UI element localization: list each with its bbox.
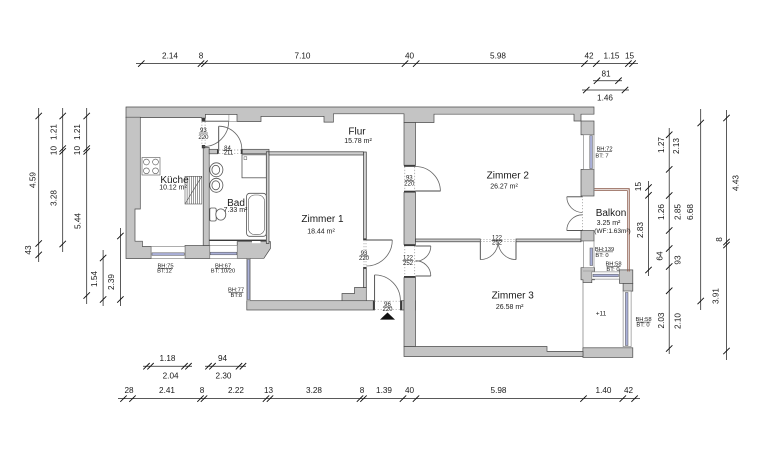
svg-text:BT: 7: BT: 7 <box>595 154 608 160</box>
svg-text:220: 220 <box>359 256 370 262</box>
svg-text:6.68: 6.68 <box>686 204 695 220</box>
svg-text:+11: +11 <box>596 311 607 318</box>
svg-text:42: 42 <box>624 386 634 395</box>
svg-text:18.44 m²: 18.44 m² <box>307 228 335 235</box>
svg-text:211: 211 <box>224 151 234 157</box>
svg-text:220: 220 <box>198 135 209 141</box>
svg-text:7.33 m²: 7.33 m² <box>224 207 248 214</box>
svg-text:Zimmer 3: Zimmer 3 <box>492 291 535 302</box>
svg-text:8: 8 <box>199 52 204 61</box>
svg-text:2.03: 2.03 <box>657 312 666 328</box>
svg-text:2.22: 2.22 <box>228 386 244 395</box>
svg-text:10.12 m²: 10.12 m² <box>159 185 187 192</box>
svg-text:1.27: 1.27 <box>657 137 666 153</box>
svg-text:13: 13 <box>264 386 274 395</box>
svg-text:BT:12: BT:12 <box>157 269 172 275</box>
svg-text:4.59: 4.59 <box>29 172 38 188</box>
svg-text:2.14: 2.14 <box>162 52 178 61</box>
svg-text:3.28: 3.28 <box>306 386 322 395</box>
svg-text:BT:8: BT:8 <box>230 293 242 299</box>
svg-text:220: 220 <box>404 181 415 187</box>
svg-text:2.04: 2.04 <box>163 371 179 380</box>
svg-text:252: 252 <box>403 261 414 267</box>
svg-text:1.21: 1.21 <box>73 124 82 140</box>
svg-text:BT: 0: BT: 0 <box>606 267 619 273</box>
svg-text:1.15: 1.15 <box>604 52 620 61</box>
svg-text:Flur: Flur <box>348 127 366 138</box>
svg-text:26.58 m²: 26.58 m² <box>496 304 524 311</box>
svg-text:1.54: 1.54 <box>90 271 99 287</box>
svg-text:94: 94 <box>218 354 228 363</box>
svg-text:8: 8 <box>715 237 724 242</box>
svg-text:81: 81 <box>601 70 611 79</box>
svg-text:1.18: 1.18 <box>160 354 176 363</box>
svg-text:5.98: 5.98 <box>490 52 506 61</box>
svg-text:1.40: 1.40 <box>596 386 612 395</box>
svg-text:252: 252 <box>492 241 503 247</box>
svg-text:3.28: 3.28 <box>50 190 59 206</box>
svg-text:BT: 0: BT: 0 <box>595 253 608 259</box>
svg-text:(WF:1.63m²): (WF:1.63m²) <box>594 228 630 235</box>
svg-text:42: 42 <box>584 52 594 61</box>
svg-text:3.91: 3.91 <box>712 288 721 304</box>
svg-text:8: 8 <box>200 386 205 395</box>
svg-text:220: 220 <box>382 307 393 313</box>
svg-text:2.83: 2.83 <box>636 222 645 238</box>
svg-text:4.43: 4.43 <box>732 175 741 191</box>
svg-text:2.30: 2.30 <box>216 371 232 380</box>
svg-text:93: 93 <box>674 255 683 265</box>
svg-text:2.10: 2.10 <box>674 313 683 329</box>
svg-text:15.78 m²: 15.78 m² <box>344 138 372 145</box>
svg-text:1.21: 1.21 <box>50 124 59 140</box>
svg-text:BT: 0: BT: 0 <box>636 323 649 329</box>
svg-text:Zimmer 1: Zimmer 1 <box>301 214 344 225</box>
svg-text:10: 10 <box>50 146 59 156</box>
svg-text:3.25 m²: 3.25 m² <box>597 220 621 227</box>
svg-text:2.41: 2.41 <box>159 386 175 395</box>
svg-text:5.98: 5.98 <box>491 386 507 395</box>
svg-text:43: 43 <box>24 245 33 255</box>
svg-text:2.13: 2.13 <box>672 138 681 154</box>
svg-text:Zimmer 2: Zimmer 2 <box>487 171 530 182</box>
svg-text:10: 10 <box>73 146 82 156</box>
svg-text:1.46: 1.46 <box>597 94 613 103</box>
svg-text:7.10: 7.10 <box>295 52 311 61</box>
svg-text:5.44: 5.44 <box>74 213 83 229</box>
svg-text:8: 8 <box>360 386 365 395</box>
svg-text:15: 15 <box>634 182 643 192</box>
svg-text:64: 64 <box>656 251 665 261</box>
svg-text:BT: 10/20: BT: 10/20 <box>211 269 236 275</box>
svg-text:1.26: 1.26 <box>657 204 666 220</box>
svg-text:28: 28 <box>124 386 134 395</box>
svg-text:Balkon: Balkon <box>596 208 627 219</box>
svg-text:15: 15 <box>625 52 635 61</box>
svg-text:26.27 m²: 26.27 m² <box>490 183 518 190</box>
svg-text:40: 40 <box>405 52 415 61</box>
svg-text:1.39: 1.39 <box>376 386 392 395</box>
svg-text:40: 40 <box>405 386 415 395</box>
svg-text:2.85: 2.85 <box>674 204 683 220</box>
svg-text:2.39: 2.39 <box>107 274 116 290</box>
